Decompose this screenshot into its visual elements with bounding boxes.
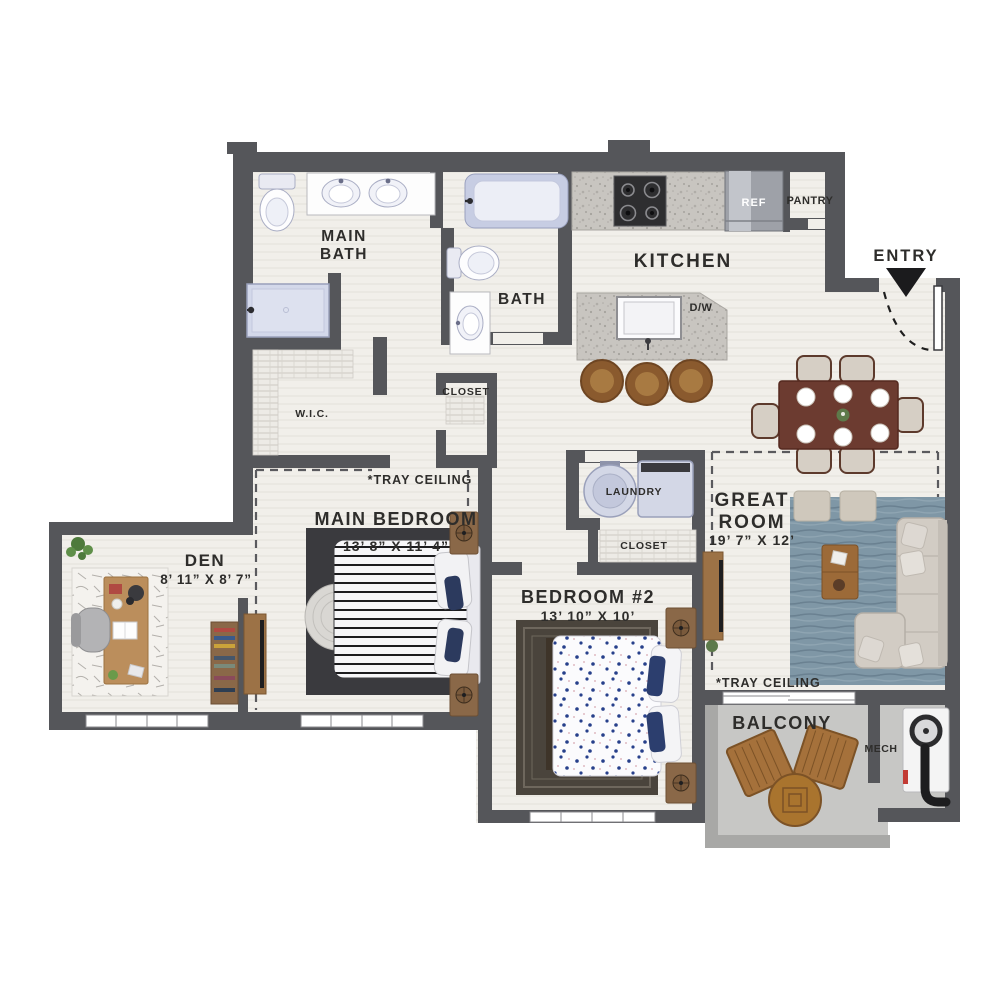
room-label-bedroom2-closet: CLOSET (620, 540, 667, 552)
dims-main-bedroom: 13’ 8” X 11’ 4” (343, 538, 449, 554)
wall-segment (588, 528, 598, 568)
wall-segment (478, 562, 522, 575)
ottoman (840, 491, 876, 521)
room-label-laundry: LAUNDRY (606, 486, 663, 498)
mech-fixtures (903, 708, 949, 802)
hall-closet-shelving (446, 396, 484, 424)
stove-icon (614, 176, 666, 226)
wall-segment (233, 337, 340, 350)
room-label-wic: W.I.C. (295, 408, 328, 420)
balcony-wall-segment (705, 705, 718, 848)
shower-icon (247, 284, 329, 337)
room-label-great-room-line2: ROOM (718, 512, 785, 533)
bedroom-tv-console (244, 614, 266, 694)
room-label-bath: BATH (498, 291, 546, 308)
room-label-balcony: BALCONY (732, 713, 832, 733)
wall-segment (878, 808, 960, 822)
bath-vanity (450, 292, 490, 354)
room-label-kitchen: KITCHEN (634, 251, 732, 272)
label-tray-ceiling-great-room: *TRAY CEILING (716, 676, 821, 690)
room-label-great-room-line1: GREAT (714, 490, 789, 511)
wall-segment (436, 430, 446, 455)
pillow (898, 642, 924, 668)
chair-icon (797, 446, 831, 473)
chair-icon (840, 356, 874, 383)
entry-door-leaf (934, 286, 942, 350)
bookshelf-icon (211, 622, 238, 704)
tv-console (703, 552, 723, 652)
room-label-main-bath-line1: MAIN (321, 228, 367, 245)
label-ref: REF (742, 197, 767, 209)
chair-icon (896, 398, 923, 432)
chair-icon (840, 446, 874, 473)
bed2 (546, 636, 682, 776)
water-heater-icon (903, 708, 949, 802)
bathtub-icon (465, 174, 568, 228)
bedroom2-window (530, 812, 655, 822)
coffee-table (822, 545, 858, 599)
wall-segment (233, 455, 390, 468)
main-bedroom-window (301, 715, 423, 727)
chair-icon (797, 356, 831, 383)
label-tray-ceiling-main-bedroom: *TRAY CEILING (368, 473, 473, 487)
room-label-main-bedroom: MAIN BEDROOM (315, 509, 478, 529)
outside-patch (888, 822, 965, 852)
toilet-icon (259, 174, 295, 231)
wall-segment (49, 522, 62, 725)
centerpiece-flower (841, 412, 845, 416)
room-label-hall-closet: CLOSET (442, 386, 489, 398)
dims-bedroom2: 13’ 10” X 10’ (541, 608, 636, 624)
label-dishwasher: D/W (690, 302, 713, 314)
den-window (86, 715, 208, 727)
room-label-pantry: PANTRY (787, 195, 834, 207)
tv-icon (260, 620, 264, 688)
office-chair-icon (71, 608, 110, 652)
plant-icon (706, 640, 718, 652)
dims-den: 8’ 11” X 8’ 7” (160, 572, 252, 587)
toilet-icon (447, 246, 499, 280)
room-label-den: DEN (185, 551, 225, 570)
wall-segment (233, 152, 845, 172)
door-opening (808, 219, 825, 229)
ottoman (794, 491, 830, 521)
wall-segment (373, 337, 387, 395)
nightstand (666, 608, 696, 648)
bed-main (334, 540, 480, 684)
room-label-mech: MECH (865, 743, 898, 755)
wall-segment (608, 140, 650, 154)
balcony-table-icon (769, 774, 821, 826)
room-label-bedroom2: BEDROOM #2 (521, 587, 655, 607)
label-entry: ENTRY (873, 247, 938, 265)
floor-plan: MAIN BATH BATH KITCHEN REF PANTRY ENTRY … (0, 0, 1000, 1000)
desk (104, 577, 148, 684)
pillow (900, 522, 928, 550)
wall-segment (49, 522, 233, 535)
door-opening (585, 451, 637, 462)
floor-plan-page: MAIN BATH BATH KITCHEN REF PANTRY ENTRY … (0, 0, 1000, 1000)
nightstand (666, 763, 696, 803)
chair-icon (752, 404, 779, 438)
door-opening (493, 333, 543, 344)
double-vanity (307, 173, 435, 215)
dims-great-room: 19’ 7” X 12’ (709, 532, 795, 548)
tv-icon (719, 560, 723, 632)
balcony-sliding-door (723, 692, 855, 704)
balcony-wall-segment (705, 835, 890, 848)
room-label-main-bath-line2: BATH (320, 246, 368, 263)
nightstand (450, 674, 478, 716)
bar-stools (581, 360, 712, 405)
pillow (899, 550, 926, 577)
wall-segment (845, 278, 879, 292)
